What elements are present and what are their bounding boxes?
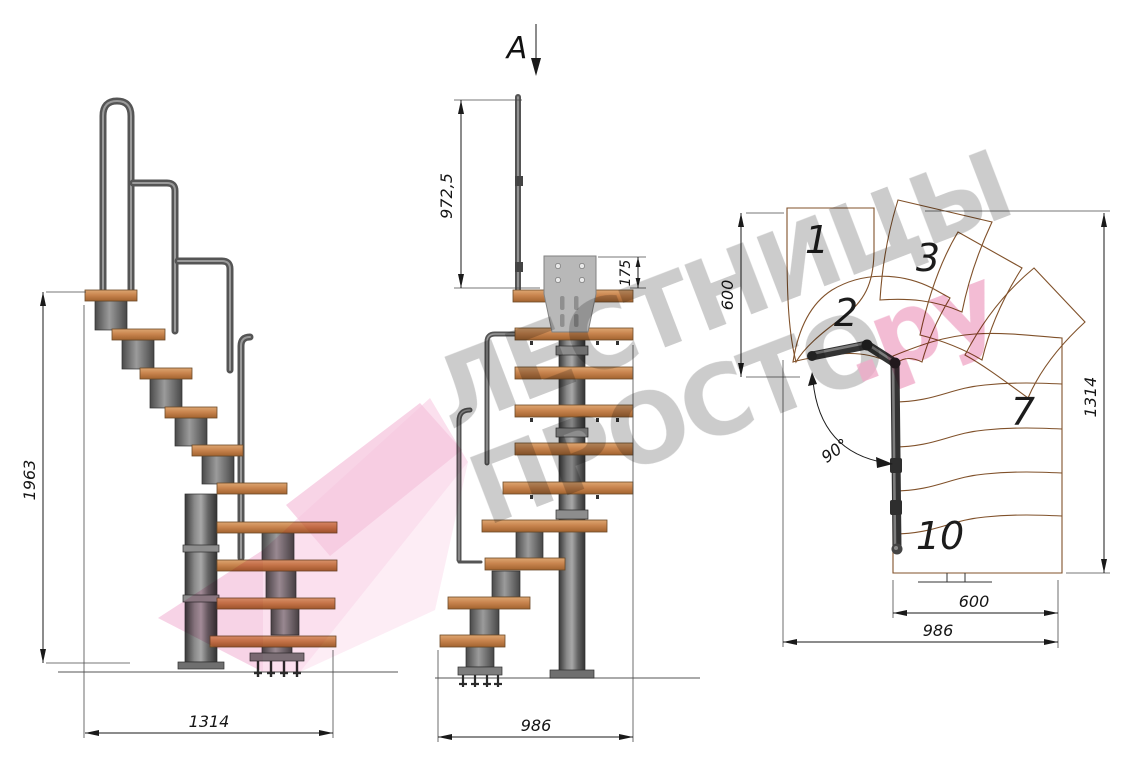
section-label: A [505,31,528,66]
anchor-plate [458,667,502,675]
step-label-7: 7 [1011,390,1035,434]
plan-tread-joints [893,383,1062,534]
dim-label-rail-height: 972,5 [437,173,456,219]
dim-rail-height: 972,5 [437,100,540,288]
section-marker: A [505,24,541,76]
dim-total-height: 1963 [20,292,130,663]
floor-bracket [918,573,992,582]
column-foot [178,662,224,669]
staircase-drawing: 1963 1314 A [0,0,1130,763]
dim-flight-width: 600 [893,580,1058,648]
dim-label-plan-total-width: 986 [923,621,954,640]
dim-label-length: 1314 [189,712,230,731]
dim-label-plan-depth: 1314 [1081,377,1100,418]
dim-label-angle: 90° [818,435,852,467]
step-label-10: 10 [916,514,964,558]
anchor-bolts [459,675,502,687]
dim-label-flight-width: 600 [959,592,990,611]
watermark: ЛЕСТНИЦЫ ПРОСТО .ру [158,130,1061,672]
dim-label-height: 1963 [20,460,39,501]
dim-label-front-width: 986 [521,716,552,735]
column-foot [550,670,594,678]
